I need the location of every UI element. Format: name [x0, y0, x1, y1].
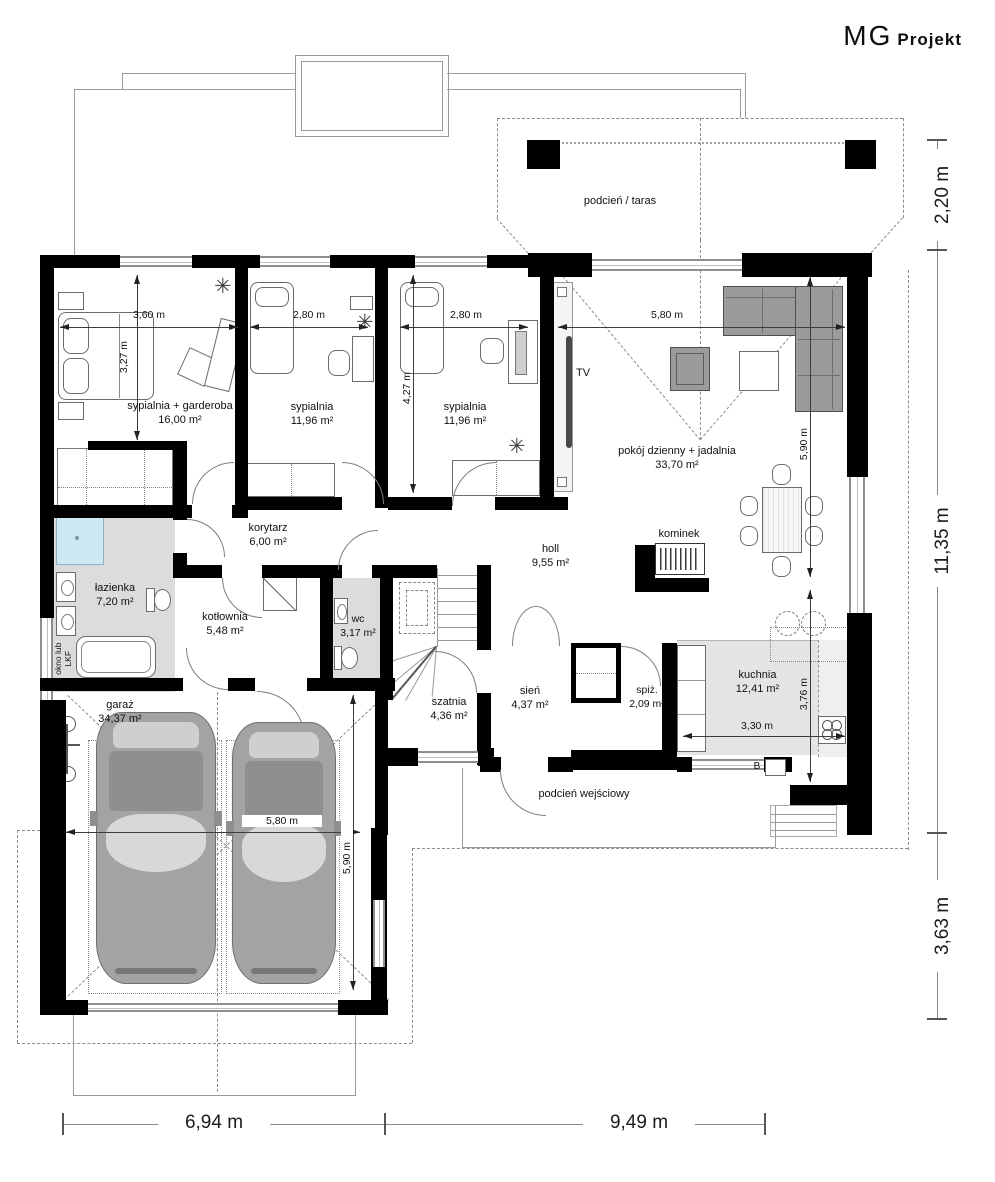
armchair-ottoman	[670, 347, 710, 391]
bar-stool	[775, 611, 800, 636]
dining-chair	[805, 496, 823, 516]
room-name: korytarz	[223, 521, 313, 535]
dim-ext-949: 9,49 m	[583, 1112, 695, 1134]
double-bed	[58, 312, 154, 400]
shelf	[350, 296, 373, 310]
room-area: 4,37 m²	[492, 698, 568, 712]
room-area: 6,00 m²	[223, 535, 313, 549]
dim-ext-220: 2,20 m	[932, 149, 954, 241]
room-area: 3,17 m²	[333, 627, 383, 641]
garage-door	[88, 1003, 338, 1012]
bar-stool	[801, 611, 826, 636]
plant-icon: ✳	[508, 436, 526, 457]
room-name: szatnia	[410, 695, 488, 709]
room-name: kotłownia	[182, 610, 268, 624]
door-arc	[435, 651, 477, 693]
door-arc	[338, 530, 378, 570]
brand-logo: MGProjekt	[843, 20, 962, 52]
fireplace-insert	[655, 543, 705, 575]
room-label-pokoj-dzienny: pokój dzienny + jadalnia 33,70 m²	[592, 444, 762, 473]
room-name: sień	[492, 684, 568, 698]
room-label-sien: sień 4,37 m²	[492, 684, 568, 713]
window	[373, 900, 385, 967]
window	[120, 256, 192, 267]
room-label-szatnia: szatnia 4,36 m²	[410, 695, 488, 724]
room-label-spiz: spiż. 2,09 m²	[612, 684, 682, 711]
dim-living-height: 5,90 m	[798, 404, 810, 484]
room-label-sypialnia-garderoba: sypialnia + garderoba 16,00 m²	[100, 399, 260, 428]
dining-chair	[740, 496, 758, 516]
room-label-garaz: garaż 34,37 m²	[70, 698, 170, 727]
room-area: 16,00 m²	[100, 413, 260, 427]
boiler-label: B	[751, 760, 763, 773]
terrace-glass-door	[592, 259, 742, 271]
room-label-taras: podcień / taras	[560, 194, 680, 208]
dim-bed2-width: 2,80 m	[269, 309, 349, 321]
room-name: pokój dzienny + jadalnia	[592, 444, 762, 458]
toilet	[341, 647, 358, 669]
okno-lkf-label: okno lub LKF	[54, 629, 74, 689]
dim-ext-694: 6,94 m	[158, 1112, 270, 1134]
dim-living-width: 5,80 m	[627, 309, 707, 321]
door-arc	[536, 606, 560, 646]
door-arc	[512, 606, 536, 646]
door-arc	[192, 462, 234, 504]
room-label-sypialnia-1: sypialnia 11,96 m²	[252, 400, 372, 429]
dim-kitchen-width: 3,30 m	[717, 720, 797, 732]
room-label-podcien-wejsciowy: podcień wejściowy	[538, 787, 630, 801]
door-arc	[621, 646, 661, 686]
room-area: 2,09 m²	[612, 698, 682, 712]
room-name: sypialnia + garderoba	[100, 399, 260, 413]
fireplace	[635, 578, 709, 592]
wardrobe	[247, 463, 335, 497]
plant-icon: ✳	[214, 276, 232, 297]
terrace-post	[845, 140, 876, 169]
tv-icon	[566, 336, 572, 448]
kitchen-terrace-steps	[770, 805, 837, 837]
room-name: podcień wejściowy	[538, 787, 630, 801]
floor-plan: MGProjekt	[0, 0, 995, 1182]
room-name: garaż	[70, 698, 170, 712]
door-arc	[187, 519, 225, 557]
room-area: 11,96 m²	[405, 414, 525, 428]
chair	[480, 338, 504, 364]
okno-line2: LKF	[64, 629, 74, 689]
nightstand	[58, 292, 84, 310]
dim-bed3-height: 4,27 m	[401, 348, 413, 428]
chimney-box	[295, 55, 449, 137]
room-label-korytarz: korytarz 6,00 m²	[223, 521, 313, 550]
window	[260, 256, 330, 267]
dining-chair	[805, 526, 823, 546]
desk	[352, 336, 374, 382]
door-arc	[186, 648, 228, 690]
room-area: 5,48 m²	[182, 624, 268, 638]
room-name: łazienka	[72, 581, 158, 595]
room-name: sypialnia	[252, 400, 372, 414]
dim-ext-1135: 11,35 m	[932, 495, 954, 587]
dim-kitchen-height: 3,76 m	[798, 654, 810, 734]
room-name: holl	[513, 542, 588, 556]
room-label-lazienka: łazienka 7,20 m²	[72, 581, 158, 610]
room-name: wc	[333, 613, 383, 627]
room-area: 33,70 m²	[592, 458, 762, 472]
room-label-holl: holl 9,55 m²	[513, 542, 588, 571]
room-label-kotlownia: kotłownia 5,48 m²	[182, 610, 268, 639]
room-label-kominek: kominek	[643, 527, 715, 541]
window	[849, 477, 865, 613]
car-1	[96, 712, 216, 984]
dining-chair	[772, 556, 791, 577]
brand-projekt: Projekt	[897, 30, 962, 49]
dining-table	[762, 487, 802, 553]
dim-garage-width: 5,80 m	[242, 815, 322, 827]
boiler-box	[765, 759, 786, 776]
boiler-unit	[263, 577, 297, 611]
car-2	[232, 722, 336, 984]
corner-sofa	[795, 286, 843, 412]
tv-label: TV	[576, 366, 606, 380]
nightstand	[58, 402, 84, 420]
room-name: sypialnia	[405, 400, 525, 414]
room-name: podcień / taras	[560, 194, 680, 208]
brand-mg: MG	[843, 20, 892, 51]
walk-in-wardrobe	[57, 448, 173, 506]
shower	[56, 513, 104, 565]
window	[415, 256, 487, 267]
room-label-wc: wc 3,17 m²	[333, 613, 383, 640]
room-area: 4,36 m²	[410, 709, 488, 723]
room-name: kominek	[643, 527, 715, 541]
room-area: 34,37 m²	[70, 712, 170, 726]
dim-garage-height: 5,90 m	[341, 818, 353, 898]
dim-bed3-width: 2,80 m	[426, 309, 506, 321]
room-name: kuchnia	[710, 668, 805, 682]
dining-chair	[772, 464, 791, 485]
coffee-table	[739, 351, 779, 391]
room-area: 12,41 m²	[710, 682, 805, 696]
chair	[328, 350, 350, 376]
terrace-post	[527, 140, 560, 169]
room-area: 11,96 m²	[252, 414, 372, 428]
room-area: 7,20 m²	[72, 595, 158, 609]
dim-bed1-height: 3,27 m	[118, 317, 130, 397]
bathtub	[76, 636, 156, 678]
room-area: 9,55 m²	[513, 556, 588, 570]
room-label-sypialnia-2: sypialnia 11,96 m²	[405, 400, 525, 429]
stove	[818, 716, 846, 744]
dining-chair	[740, 526, 758, 546]
dim-ext-363: 3,63 m	[932, 880, 954, 972]
window	[418, 751, 478, 763]
room-label-kuchnia: kuchnia 12,41 m²	[710, 668, 805, 697]
room-name: spiż.	[612, 684, 682, 698]
